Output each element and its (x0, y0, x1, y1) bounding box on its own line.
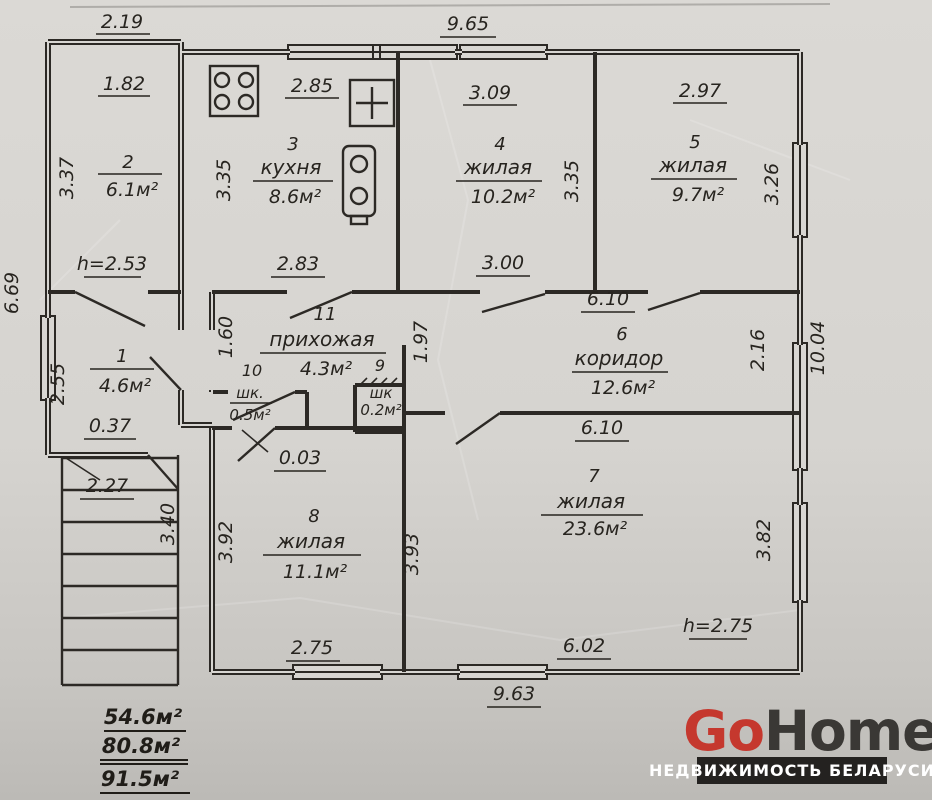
dim-room4-w: 3.09 (469, 82, 511, 104)
floor-plan-photo: 2 6.1м² 3 кухня 8.6м² 4 жилая 10.2м² 5 ж… (0, 0, 932, 800)
room-2-number: 2 (122, 152, 133, 173)
dim-hall-top: 2.83 (277, 253, 319, 275)
dim-kitchen-w: 2.85 (291, 75, 333, 97)
dim-room8-h: 3.92 (215, 521, 237, 563)
dim-room2-w: 1.82 (103, 73, 145, 95)
dim-main-width-top: 9.65 (447, 13, 489, 35)
room-6-number: 6 (616, 324, 627, 345)
dim-ceiling-left: h=2.53 (77, 253, 147, 275)
totals-line-1: 54.6м² (104, 705, 183, 729)
dim-notch: 0.37 (89, 415, 131, 437)
dim-corridor-bottom: 6.10 (581, 417, 623, 439)
room-10-number: 10 (242, 361, 262, 380)
room-11-number: 11 (314, 304, 337, 325)
dim-right-height: 10.04 (807, 321, 829, 375)
dim-room7-h: 3.82 (753, 519, 775, 561)
dim-center-h: 3.93 (401, 533, 423, 575)
dim-room5-h: 3.26 (761, 163, 783, 205)
dim-niche-h: 2.16 (747, 329, 769, 371)
logo-go-text: Go (683, 699, 764, 763)
logo-home-text: Home (764, 699, 932, 763)
dim-room7-w: 6.02 (563, 635, 605, 657)
room-5-area: 9.7м² (672, 184, 725, 206)
room-4-number: 4 (494, 134, 505, 155)
dim-porch-w: 2.27 (86, 475, 128, 497)
room-4-name: жилая (463, 155, 532, 179)
dim-annex-width: 2.19 (101, 11, 143, 33)
room-2-area: 6.1м² (106, 179, 159, 201)
dim-hall-h: 1.60 (215, 316, 237, 358)
dim-room1-h: 2.55 (47, 363, 69, 405)
dim-room8-w: 2.75 (291, 637, 333, 659)
room-3-name: кухня (261, 155, 322, 179)
totals-block: 54.6м² 80.8м² 91.5м² (100, 705, 190, 793)
room-1-area: 4.6м² (99, 375, 152, 397)
floor-plan-drawing: 2 6.1м² 3 кухня 8.6м² 4 жилая 10.2м² 5 ж… (0, 0, 932, 800)
room-9-number: 9 (375, 356, 385, 375)
room-7-number: 7 (588, 466, 600, 487)
room-10-area: 0.5м² (229, 406, 270, 424)
dim-mid-top: 3.00 (482, 252, 524, 274)
room-11-area: 4.3м² (300, 358, 353, 380)
room-6-name: коридор (575, 346, 664, 370)
room-9-area: 0.2м² (360, 401, 401, 419)
room-11-name: прихожая (269, 327, 374, 351)
totals-line-2: 80.8м² (102, 734, 181, 758)
room-3-number: 3 (287, 134, 298, 155)
dim-bottom-width: 9.63 (493, 683, 535, 705)
dim-room4-h: 3.35 (561, 160, 583, 202)
dim-gap: 0.03 (279, 447, 321, 469)
dim-ceiling-right: h=2.75 (683, 615, 753, 637)
room-8-number: 8 (308, 506, 319, 527)
room-6-area: 12.6м² (591, 377, 656, 399)
dim-corridor-top: 6.10 (587, 288, 629, 310)
room-4-area: 10.2м² (471, 186, 536, 208)
dim-room2-h: 3.37 (56, 157, 78, 199)
room-7-area: 23.6м² (563, 518, 628, 540)
room-9-name: шк (370, 384, 393, 402)
room-10-name: шк. (236, 384, 264, 402)
totals-line-3: 91.5м² (101, 767, 180, 791)
logo-tagline-text: НЕДВИЖИМОСТЬ БЕЛАРУСИ (649, 761, 932, 780)
room-8-name: жилая (276, 529, 345, 553)
dim-kitchen-h: 3.35 (213, 159, 235, 201)
dim-porch-h: 3.40 (157, 503, 179, 545)
dim-room5-w: 2.97 (679, 80, 721, 102)
room-8-area: 11.1м² (283, 561, 348, 583)
room-1-number: 1 (116, 346, 127, 367)
dim-corridor-h: 1.97 (410, 321, 432, 363)
room-3-area: 8.6м² (269, 186, 322, 208)
room-5-number: 5 (689, 132, 700, 153)
gohome-logo: Go Home НЕДВИЖИМОСТЬ БЕЛАРУСИ (649, 699, 932, 784)
dim-left-height: 6.69 (1, 272, 23, 314)
room-5-name: жилая (658, 153, 727, 177)
room-7-name: жилая (556, 489, 625, 513)
